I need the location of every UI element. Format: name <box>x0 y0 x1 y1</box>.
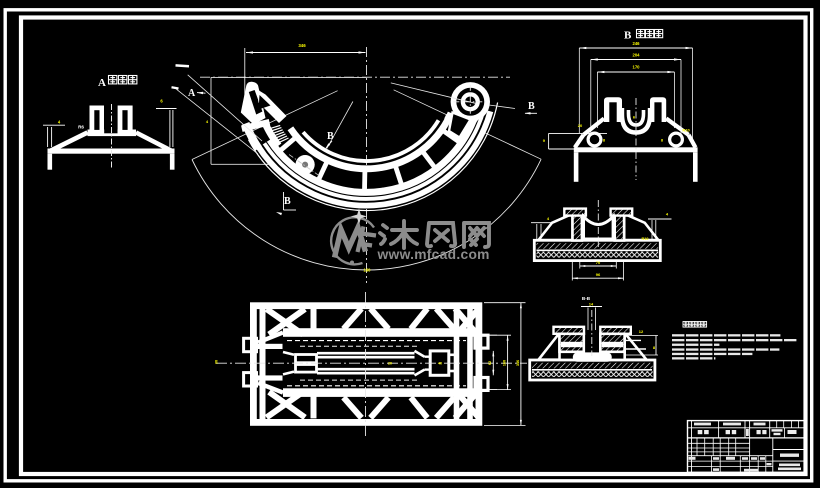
svg-text:62: 62 <box>488 361 492 365</box>
svg-text:B: B <box>528 101 535 112</box>
svg-text:40: 40 <box>438 362 442 366</box>
svg-text:96: 96 <box>596 272 601 277</box>
svg-text:204: 204 <box>633 53 641 58</box>
svg-text:170: 170 <box>633 65 641 70</box>
svg-text:20: 20 <box>578 123 583 128</box>
svg-text:346: 346 <box>298 43 306 48</box>
svg-text:B: B <box>284 196 291 207</box>
svg-text:12: 12 <box>639 329 644 334</box>
svg-text:160: 160 <box>503 360 507 366</box>
svg-text:B-B: B-B <box>582 296 591 301</box>
svg-text:A: A <box>98 77 106 89</box>
svg-text:346: 346 <box>516 360 520 366</box>
svg-text:R10: R10 <box>642 237 649 241</box>
svg-text:70: 70 <box>596 260 601 265</box>
svg-text:30: 30 <box>215 360 219 364</box>
svg-text:R10: R10 <box>682 128 690 133</box>
svg-text:160: 160 <box>364 268 372 273</box>
svg-text:B: B <box>624 30 632 42</box>
svg-text:R6: R6 <box>78 125 84 130</box>
svg-text:A: A <box>188 88 196 99</box>
svg-text:20: 20 <box>388 362 392 366</box>
svg-text:B: B <box>327 131 334 142</box>
svg-text:www.mfcad.com: www.mfcad.com <box>377 247 490 262</box>
svg-text:246: 246 <box>633 41 641 46</box>
